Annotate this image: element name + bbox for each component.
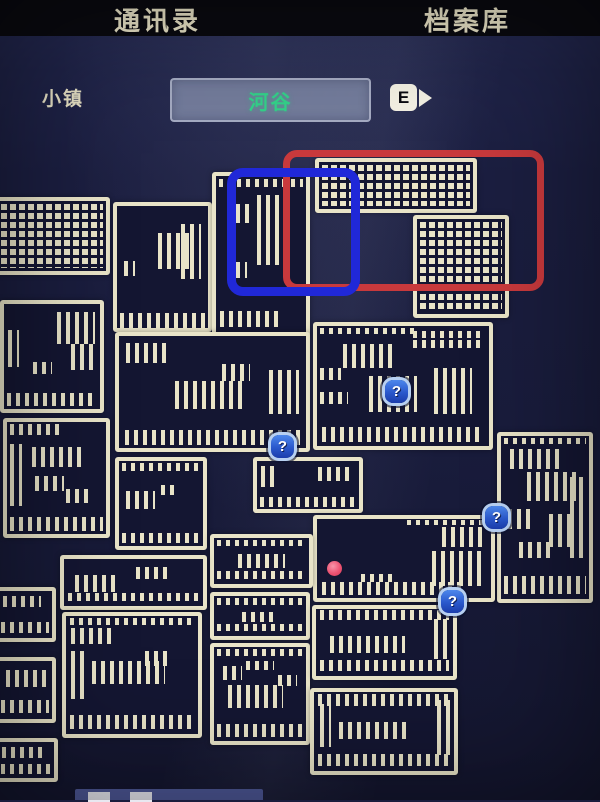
map-room-interior	[214, 596, 306, 636]
explored-stripe-pattern	[504, 438, 587, 445]
map-room-9	[497, 432, 593, 603]
top-tab-bar: 通讯录 档案库	[0, 0, 600, 36]
explored-stripe-pattern	[70, 715, 194, 729]
explored-stripe-pattern	[320, 368, 341, 380]
explored-stripe-pattern	[519, 542, 554, 558]
map-room-interior	[4, 304, 100, 409]
explored-stripe-pattern	[318, 467, 351, 481]
explored-stripe-pattern	[161, 485, 178, 495]
explored-stripe-pattern	[442, 527, 484, 547]
explored-stripe-pattern	[222, 364, 250, 381]
explored-stripe-pattern	[504, 576, 587, 594]
explored-stripe-pattern	[434, 619, 448, 659]
explored-stripe-pattern	[320, 328, 415, 334]
explored-stripe-pattern	[413, 340, 482, 347]
map-room-interior	[66, 616, 198, 734]
location-name: 河谷	[249, 86, 293, 115]
explored-stripe-pattern	[122, 463, 201, 472]
map-room-interior	[119, 461, 203, 546]
explored-stripe-pattern	[217, 649, 303, 657]
explored-stripe-pattern	[70, 618, 194, 625]
explored-stripe-pattern	[10, 517, 103, 530]
map-room-interior	[119, 336, 306, 448]
map-room-7	[115, 332, 310, 452]
explored-stripe-pattern	[145, 651, 171, 665]
tab-archive[interactable]: 档案库	[424, 1, 511, 38]
map-room-1	[0, 197, 110, 275]
bottom-legend-bar	[75, 789, 263, 800]
explored-stripe-pattern	[10, 424, 60, 435]
explored-stripe-pattern	[75, 575, 119, 591]
explored-stripe-pattern	[320, 610, 449, 619]
explored-stripe-pattern	[260, 497, 356, 507]
explored-stripe-pattern	[339, 722, 409, 739]
map-room-14	[210, 534, 313, 588]
explored-stripe-pattern	[413, 331, 482, 338]
explored-stripe-pattern	[510, 449, 563, 469]
explored-stripe-pattern	[217, 571, 306, 579]
legend-key-icon	[88, 792, 110, 802]
explored-stripe-pattern	[10, 444, 22, 506]
annotation-blue-box	[227, 168, 360, 296]
explored-stripe-pattern	[126, 343, 167, 363]
explored-stripe-pattern	[33, 362, 52, 375]
map-room-interior	[0, 201, 106, 271]
question-marker-icon: ?	[441, 590, 464, 613]
explored-stripe-pattern	[570, 477, 583, 559]
explored-stripe-pattern	[261, 466, 279, 488]
explored-stripe-pattern	[71, 628, 111, 645]
location-selector-button[interactable]: 河谷	[170, 78, 371, 122]
explored-stripe-pattern	[71, 344, 95, 370]
explored-stripe-pattern	[278, 675, 296, 686]
tab-contacts[interactable]: 通讯录	[114, 1, 201, 38]
explored-stripe-pattern	[220, 311, 283, 327]
explored-stripe-pattern	[361, 574, 396, 582]
explored-stripe-pattern	[35, 476, 65, 492]
key-hint-e[interactable]: E	[390, 84, 417, 111]
legend-key-icon	[130, 792, 152, 802]
map-room-20	[0, 738, 58, 782]
explored-stripe-pattern	[175, 381, 246, 409]
question-marker-icon: ?	[485, 506, 508, 529]
map-room-16	[60, 555, 207, 610]
explored-stripe-pattern	[223, 666, 241, 680]
explored-stripe-pattern	[71, 651, 84, 698]
key-arrow-icon	[419, 89, 432, 107]
map-room-interior	[0, 661, 52, 719]
explored-stripe-pattern	[269, 370, 299, 415]
map-room-15	[210, 592, 310, 640]
map-room-11	[115, 457, 207, 550]
map-room-23	[310, 688, 458, 775]
map-room-19	[0, 657, 56, 723]
explored-stripe-pattern	[217, 540, 306, 546]
explored-stripe-pattern	[508, 509, 534, 529]
explored-stripe-pattern	[3, 596, 41, 608]
explored-stripe-pattern	[228, 685, 283, 709]
explored-stripe-pattern	[527, 472, 575, 501]
map-room-13	[313, 515, 495, 602]
explored-stripe-pattern	[320, 392, 348, 404]
map-room-10	[3, 418, 110, 538]
explored-stripe-pattern	[217, 624, 303, 631]
map-room-12	[253, 457, 363, 513]
map-room-interior	[0, 591, 52, 638]
explored-stripe-pattern	[217, 598, 303, 604]
explored-stripe-pattern	[217, 724, 303, 737]
map-room-interior	[214, 538, 309, 584]
map-room-2	[113, 202, 212, 332]
explored-stripe-pattern	[1, 700, 50, 713]
explored-stripe-pattern	[124, 261, 135, 276]
explored-stripe-pattern	[8, 330, 20, 367]
unexplored-grid-pattern	[1, 204, 103, 268]
explored-stripe-pattern	[2, 747, 47, 758]
map-room-6	[0, 300, 104, 413]
explored-stripe-pattern	[6, 670, 47, 687]
map-room-interior	[316, 609, 453, 676]
explored-stripe-pattern	[122, 533, 201, 543]
map-room-22	[312, 605, 457, 680]
explored-stripe-pattern	[238, 554, 286, 568]
explored-stripe-pattern	[136, 567, 171, 579]
explored-stripe-pattern	[330, 636, 405, 653]
map-room-interior	[314, 692, 454, 771]
map-room-18	[0, 587, 56, 642]
explored-stripe-pattern	[7, 393, 97, 406]
explored-stripe-pattern	[126, 491, 155, 510]
explored-stripe-pattern	[246, 661, 274, 670]
explored-stripe-pattern	[432, 551, 484, 587]
explored-stripe-pattern	[343, 344, 395, 368]
explored-stripe-pattern	[1, 764, 51, 774]
explored-stripe-pattern	[318, 754, 450, 767]
explored-stripe-pattern	[407, 520, 485, 525]
explored-stripe-pattern	[242, 612, 279, 622]
explored-stripe-pattern	[320, 660, 449, 671]
map-room-21	[210, 643, 310, 745]
question-marker-icon: ?	[385, 380, 408, 403]
map-room-interior	[117, 206, 208, 328]
map-room-interior	[7, 422, 106, 534]
explored-stripe-pattern	[437, 700, 450, 755]
map-room-interior	[64, 559, 203, 606]
explored-stripe-pattern	[32, 447, 82, 467]
explored-stripe-pattern	[322, 582, 461, 595]
explored-stripe-pattern	[66, 489, 91, 502]
explored-stripe-pattern	[318, 694, 450, 707]
map-room-interior	[214, 647, 306, 741]
map-room-interior	[317, 519, 491, 598]
explored-stripe-pattern	[181, 224, 201, 279]
map-room-17	[62, 612, 202, 738]
explored-stripe-pattern	[57, 312, 95, 344]
map-room-interior	[257, 461, 359, 509]
explored-stripe-pattern	[68, 593, 199, 601]
player-position-icon	[327, 561, 342, 576]
area-label: 小镇	[42, 84, 84, 111]
explored-stripe-pattern	[322, 427, 484, 443]
explored-stripe-pattern	[120, 313, 206, 328]
explored-stripe-pattern	[434, 368, 472, 414]
explored-stripe-pattern	[1, 622, 50, 634]
map-room-interior	[501, 436, 589, 599]
question-marker-icon: ?	[271, 435, 294, 458]
map-room-interior	[0, 742, 54, 778]
explored-stripe-pattern	[320, 704, 331, 747]
